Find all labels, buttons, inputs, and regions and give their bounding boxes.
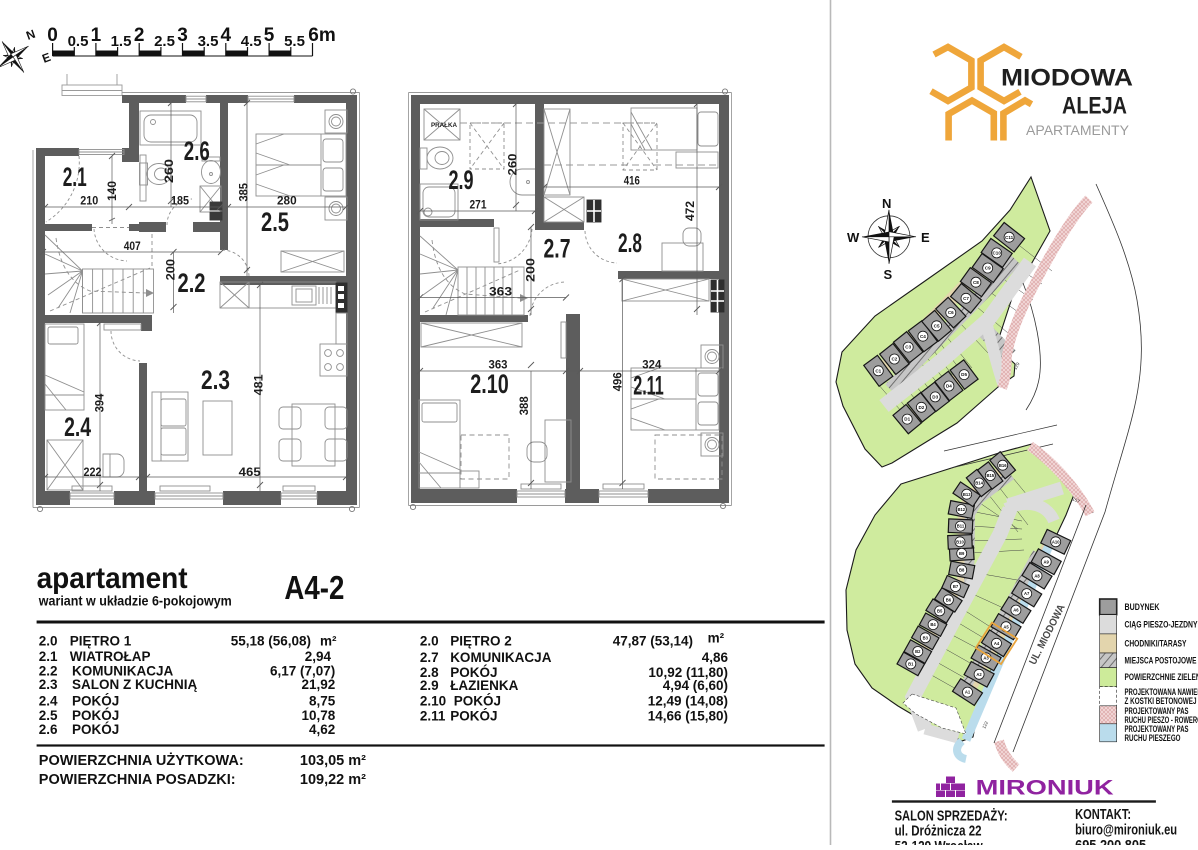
svg-text:260: 260 [508,154,520,176]
svg-text:5: 5 [264,25,275,46]
svg-text:260: 260 [164,159,176,183]
svg-text:MIODOWA: MIODOWA [1001,65,1133,92]
svg-text:185: 185 [171,196,190,208]
svg-text:2.7: 2.7 [420,650,439,665]
svg-text:POWIERZCHNIA UŻYTKOWA:: POWIERZCHNIA UŻYTKOWA: [39,752,244,769]
svg-text:472: 472 [685,201,697,221]
svg-text:MIEJSCA POSTOJOWE: MIEJSCA POSTOJOWE [1125,655,1197,665]
svg-text:POKÓJ: POKÓJ [72,694,119,709]
svg-text:2.5: 2.5 [261,207,289,237]
svg-text:C9: C9 [985,266,991,271]
svg-text:2: 2 [134,25,145,46]
svg-text:POKÓJ: POKÓJ [72,708,119,723]
svg-text:D5: D5 [961,372,967,377]
svg-text:14,66 (15,80): 14,66 (15,80) [648,709,728,724]
svg-text:0.5: 0.5 [68,33,89,50]
svg-text:A6: A6 [1013,608,1019,613]
svg-text:PRAŁKA: PRAŁKA [431,123,458,129]
svg-text:140: 140 [107,181,119,201]
svg-text:ŁAZIENKA: ŁAZIENKA [450,678,518,693]
svg-text:280: 280 [277,196,297,208]
svg-text:D2: D2 [918,405,924,410]
svg-text:APARTAMENTY: APARTAMENTY [1026,123,1129,138]
svg-text:B2: B2 [915,649,921,654]
svg-text:8,75: 8,75 [309,694,336,709]
svg-text:103,05 m²: 103,05 m² [300,753,366,769]
svg-text:S: S [884,267,893,282]
svg-text:2.5: 2.5 [39,708,58,723]
svg-text:200: 200 [526,258,538,282]
svg-text:A5: A5 [1003,624,1009,629]
svg-text:2.9: 2.9 [420,678,439,693]
svg-text:3: 3 [177,25,188,46]
svg-text:C8: C8 [973,280,979,285]
svg-text:POKÓJ: POKÓJ [450,709,497,724]
svg-text:222: 222 [84,467,102,479]
svg-text:POWIERZCHNIA POSADZKI:: POWIERZCHNIA POSADZKI: [39,772,236,788]
svg-text:4: 4 [221,25,232,46]
svg-text:C2: C2 [891,357,897,362]
svg-text:CHODNIKI/TARASY: CHODNIKI/TARASY [1125,638,1187,648]
svg-text:BUDYNEK: BUDYNEK [1125,602,1160,612]
svg-text:Z KOSTKI BETONOWEJ: Z KOSTKI BETONOWEJ [1125,696,1197,706]
svg-text:2.6: 2.6 [184,136,210,166]
svg-text:KONTAKT:: KONTAKT: [1075,807,1131,823]
svg-text:52-129 Wrocław: 52-129 Wrocław [895,839,984,845]
svg-text:RUCHU PIESZEGO: RUCHU PIESZEGO [1125,733,1181,743]
svg-text:C5: C5 [934,323,940,328]
svg-text:2.8: 2.8 [618,228,642,258]
svg-text:POKÓJ: POKÓJ [454,693,501,708]
svg-text:2.9: 2.9 [449,165,474,195]
svg-text:465: 465 [239,467,262,479]
svg-text:m²: m² [708,631,725,646]
svg-text:1.5: 1.5 [111,33,132,50]
svg-text:5.5: 5.5 [284,33,305,50]
svg-text:271: 271 [470,200,488,212]
svg-text:2.6: 2.6 [39,722,58,737]
svg-text:2.3: 2.3 [39,677,58,692]
svg-text:m²: m² [320,634,337,649]
svg-text:C10: C10 [992,251,1001,256]
svg-text:E: E [921,230,930,245]
svg-text:B9: B9 [959,551,965,556]
svg-text:W: W [847,230,860,245]
svg-text:wariant w układzie 6-pokojowym: wariant w układzie 6-pokojowym [38,594,232,609]
svg-text:A7: A7 [1024,591,1030,596]
svg-text:394: 394 [95,393,107,412]
svg-text:C7: C7 [963,296,969,301]
svg-text:A8: A8 [1034,573,1040,578]
svg-text:2.11: 2.11 [633,371,664,401]
svg-text:0: 0 [47,25,58,46]
svg-text:SALON Z KUCHNIĄ: SALON Z KUCHNIĄ [72,677,197,692]
svg-text:3.5: 3.5 [198,33,219,50]
svg-text:2.4: 2.4 [64,412,91,442]
svg-text:apartament: apartament [37,562,188,595]
svg-text:C1: C1 [875,368,881,373]
svg-text:biuro@mironiuk.eu: biuro@mironiuk.eu [1075,823,1177,839]
svg-text:PIĘTRO 2: PIĘTRO 2 [450,634,512,649]
svg-text:POKÓJ: POKÓJ [72,722,119,737]
svg-text:4,86: 4,86 [702,650,729,665]
svg-text:B6: B6 [946,597,952,602]
svg-text:2.10: 2.10 [420,693,446,708]
svg-text:210: 210 [80,196,98,208]
svg-text:A9: A9 [1044,559,1050,564]
svg-text:A4-2: A4-2 [284,569,344,606]
svg-text:12,49 (14,08): 12,49 (14,08) [648,693,728,708]
svg-text:B14: B14 [975,481,983,486]
svg-text:2.5: 2.5 [154,33,175,50]
svg-text:ALEJA: ALEJA [1062,93,1127,120]
svg-text:416: 416 [624,176,640,188]
svg-text:B16: B16 [999,463,1007,468]
svg-text:1: 1 [91,25,102,46]
svg-text:2.2: 2.2 [178,268,206,298]
svg-text:385: 385 [239,182,251,201]
svg-text:10,78: 10,78 [302,708,336,723]
svg-text:C4: C4 [920,334,926,339]
svg-text:B12: B12 [957,507,965,512]
svg-text:A10: A10 [1052,539,1060,544]
svg-text:2.1: 2.1 [39,649,58,664]
svg-text:C11: C11 [1005,235,1014,240]
svg-text:2.3: 2.3 [201,365,230,395]
svg-text:SALON SPRZEDAŻY:: SALON SPRZEDAŻY: [895,808,1008,825]
svg-text:4.5: 4.5 [241,33,262,50]
svg-text:B7: B7 [953,584,959,589]
svg-text:B13: B13 [963,492,971,497]
svg-text:109,22 m²: 109,22 m² [300,772,366,788]
svg-text:2.0: 2.0 [420,634,439,649]
svg-text:POWIERZCHNIE ZIELENI: POWIERZCHNIE ZIELENI [1125,672,1198,682]
svg-text:55,18 (56,08): 55,18 (56,08) [231,634,311,649]
svg-text:C6: C6 [948,310,954,315]
svg-text:B15: B15 [986,473,994,478]
svg-text:B8: B8 [959,568,965,573]
svg-text:KOMUNIKACJA: KOMUNIKACJA [450,650,552,665]
svg-text:388: 388 [519,396,531,416]
svg-text:407: 407 [124,241,141,253]
svg-text:481: 481 [254,374,266,396]
svg-text:D3: D3 [932,395,938,400]
svg-text:A4: A4 [994,641,1000,646]
svg-text:A2: A2 [976,672,982,677]
svg-text:21,92: 21,92 [302,677,336,692]
svg-text:2.1: 2.1 [63,162,87,192]
svg-text:4,62: 4,62 [309,722,335,737]
svg-text:4,94 (6,60): 4,94 (6,60) [663,678,728,693]
svg-text:WIATROŁAP: WIATROŁAP [70,649,151,664]
svg-text:363: 363 [489,287,512,299]
svg-text:2,94: 2,94 [305,649,332,664]
svg-text:B10: B10 [956,539,964,544]
svg-text:496: 496 [613,372,625,391]
svg-text:2.10: 2.10 [470,369,509,399]
svg-text:2.7: 2.7 [544,234,571,264]
svg-text:B1: B1 [908,662,914,667]
svg-text:2.0: 2.0 [39,634,58,649]
svg-text:B11: B11 [957,524,965,529]
svg-text:47,87 (53,14): 47,87 (53,14) [613,634,693,649]
svg-text:200: 200 [166,259,178,280]
svg-text:MIRONIUK: MIRONIUK [976,777,1114,800]
svg-text:D1: D1 [904,417,910,422]
svg-text:D4: D4 [946,384,952,389]
svg-text:CIĄG PIESZO-JEZDNY: CIĄG PIESZO-JEZDNY [1125,619,1198,629]
svg-text:2.4: 2.4 [39,694,58,709]
svg-text:C3: C3 [905,345,911,350]
svg-text:A1: A1 [965,690,971,695]
svg-text:6m: 6m [308,25,335,46]
svg-text:PIĘTRO 1: PIĘTRO 1 [70,634,132,649]
svg-text:B4: B4 [930,622,936,627]
svg-text:B5: B5 [937,609,943,614]
svg-text:695 200 805: 695 200 805 [1075,838,1146,845]
svg-text:2.11: 2.11 [420,709,446,724]
svg-text:ul. Dróżnicza 22: ul. Dróżnicza 22 [895,824,982,840]
svg-text:N: N [882,196,891,211]
svg-text:B3: B3 [923,635,929,640]
